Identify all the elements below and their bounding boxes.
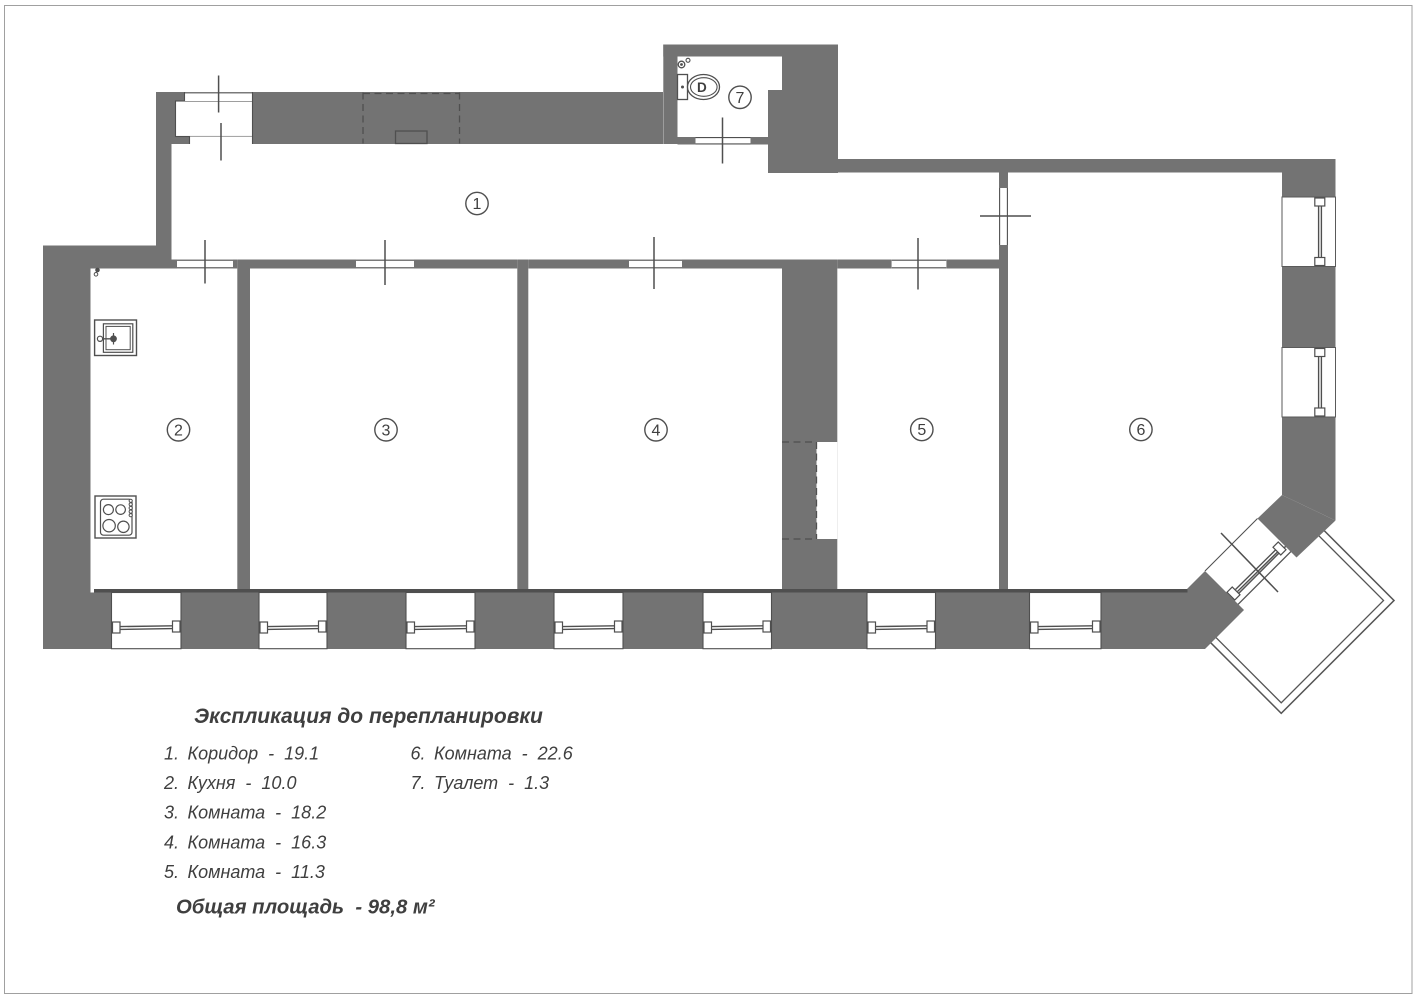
svg-text:6.: 6.: [411, 744, 426, 764]
svg-text:4.: 4.: [164, 832, 179, 852]
svg-text:3: 3: [382, 423, 391, 440]
svg-text:5: 5: [917, 422, 926, 439]
svg-text:2.: 2.: [163, 773, 179, 793]
svg-text:Комната - 11.3: Комната - 11.3: [188, 862, 325, 882]
svg-text:D: D: [697, 80, 707, 95]
svg-text:2: 2: [174, 423, 183, 440]
svg-text:6: 6: [1136, 422, 1145, 439]
svg-text:1.: 1.: [164, 744, 179, 764]
svg-text:1: 1: [473, 196, 482, 213]
svg-text:Комната - 22.6: Комната - 22.6: [434, 744, 574, 764]
svg-text:7: 7: [736, 90, 745, 107]
svg-text:Экспликация до перепланировки: Экспликация до перепланировки: [194, 705, 543, 728]
svg-text:Туалет - 1.3: Туалет - 1.3: [434, 773, 549, 793]
svg-text:Комната - 18.2: Комната - 18.2: [188, 803, 327, 823]
svg-text:7.: 7.: [411, 773, 426, 793]
svg-text:5.: 5.: [164, 862, 179, 882]
svg-text:3.: 3.: [164, 803, 179, 823]
svg-text:Комната - 16.3: Комната - 16.3: [188, 832, 327, 852]
svg-text:Общая площадь - 98,8 м²: Общая площадь - 98,8 м²: [176, 897, 436, 919]
svg-text:Кухня - 10.0: Кухня - 10.0: [188, 773, 297, 793]
svg-text:4: 4: [652, 423, 661, 440]
svg-text:Коридор - 19.1: Коридор - 19.1: [188, 744, 320, 764]
